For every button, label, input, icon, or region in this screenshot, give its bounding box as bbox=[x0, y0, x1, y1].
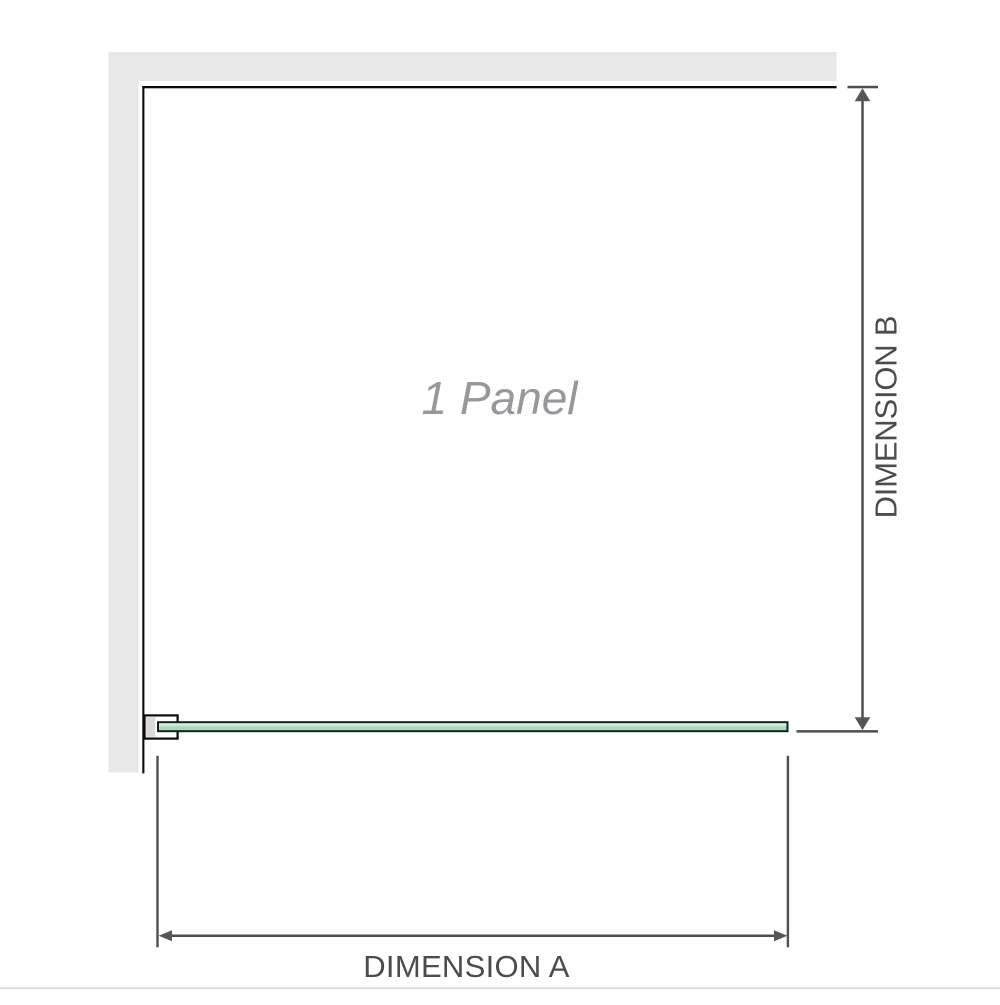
svg-text:DIMENSION B: DIMENSION B bbox=[868, 316, 903, 519]
svg-text:DIMENSION A: DIMENSION A bbox=[363, 949, 570, 984]
svg-text:1 Panel: 1 Panel bbox=[421, 372, 579, 424]
